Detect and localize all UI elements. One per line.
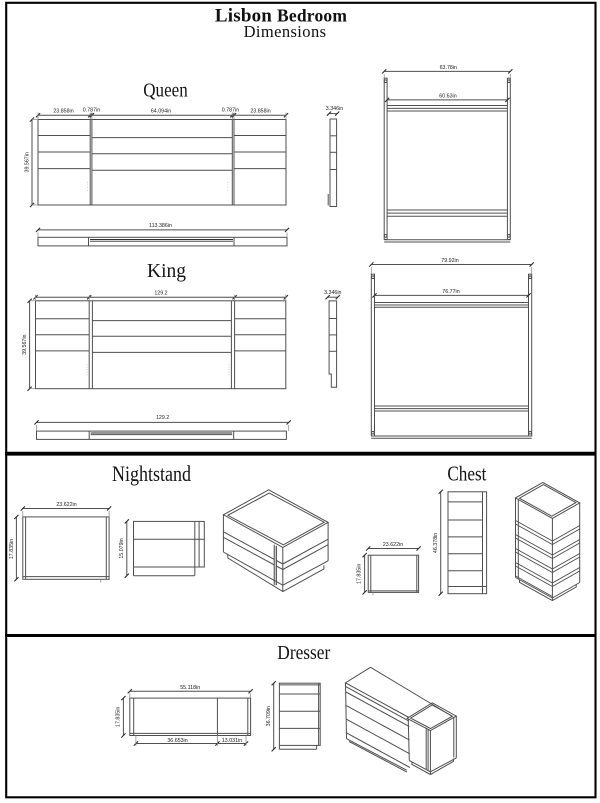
svg-text:Nightstand: Nightstand [112,461,191,486]
svg-text:13.031in: 13.031in [222,738,242,744]
svg-text:129.2: 129.2 [156,415,169,421]
svg-text:3.346in: 3.346in [324,290,341,296]
svg-text:3.346in: 3.346in [326,106,343,112]
svg-text:76.77in: 76.77in [442,289,459,295]
svg-text:King: King [147,260,186,282]
svg-text:113.386in: 113.386in [149,223,172,229]
svg-text:55.118in: 55.118in [180,685,200,691]
svg-text:Chest: Chest [447,461,486,485]
svg-text:64.094in: 64.094in [151,109,171,115]
svg-text:39.567in: 39.567in [24,152,30,172]
svg-text:23.858in: 23.858in [250,109,270,115]
svg-text:17.835in: 17.835in [116,707,122,727]
svg-text:46.378in: 46.378in [433,533,439,553]
svg-text:0.787in: 0.787in [83,107,100,113]
svg-text:63.78in: 63.78in [440,65,457,71]
svg-text:36.653in: 36.653in [167,738,187,744]
svg-text:36.709in: 36.709in [266,706,272,726]
svg-text:23.622in: 23.622in [383,542,403,548]
svg-text:17.835in: 17.835in [9,539,15,559]
svg-text:129.2: 129.2 [154,290,167,296]
svg-text:Dresser: Dresser [277,642,330,664]
svg-text:Queen: Queen [143,80,188,102]
svg-text:23.622in: 23.622in [56,502,76,508]
svg-text:Dimensions: Dimensions [244,22,327,41]
svg-text:60.63in: 60.63in [439,94,456,100]
svg-text:17.835in: 17.835in [357,564,363,584]
svg-text:79.92in: 79.92in [441,258,458,264]
svg-text:15.079in: 15.079in [119,538,125,558]
svg-text:39.567in: 39.567in [22,334,28,354]
svg-text:0.787in: 0.787in [222,107,239,113]
svg-text:23.858in: 23.858in [53,109,73,115]
